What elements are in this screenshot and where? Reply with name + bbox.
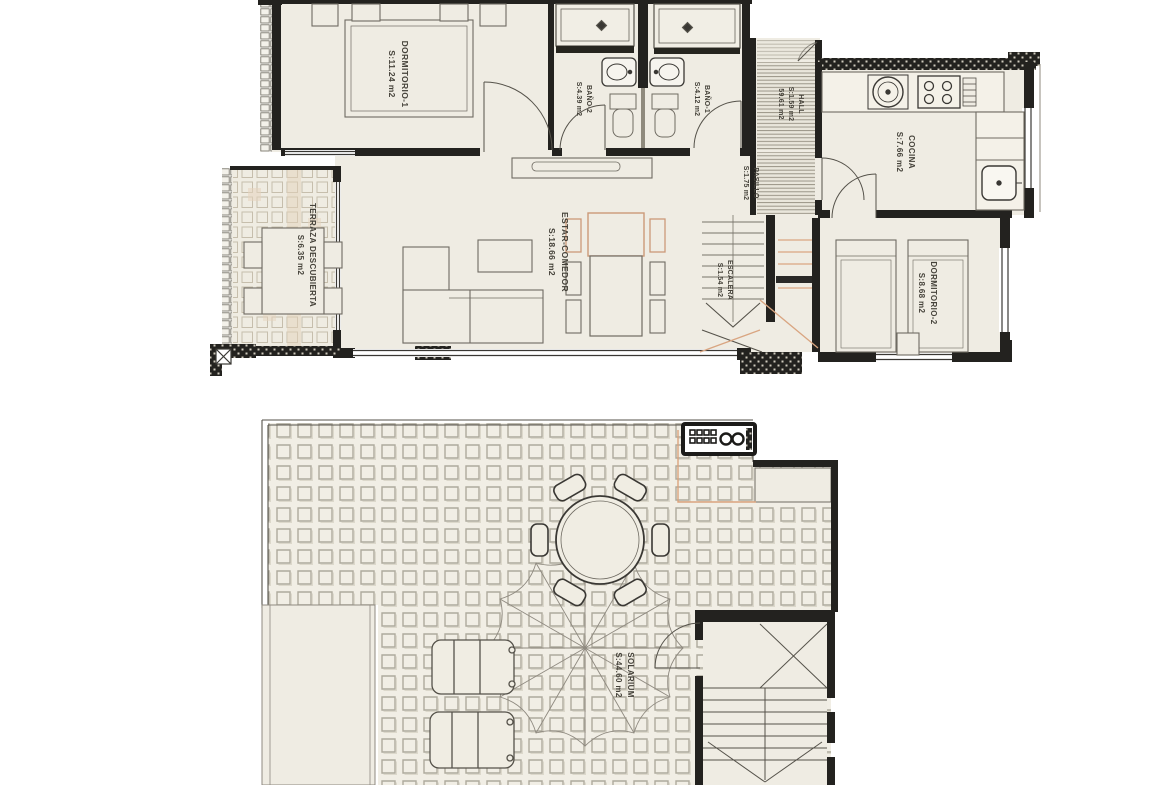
chair-icon: [244, 242, 262, 268]
double-bed-icon: [345, 4, 473, 117]
cutlery-tray-icon: [963, 78, 976, 106]
toilet-icon: [652, 94, 678, 137]
roof-floor-plan: [262, 420, 838, 785]
lower-roof-strip: [262, 605, 375, 785]
bbq-grill-icon: [683, 424, 755, 454]
kitchen-counter: [822, 72, 1004, 112]
sun-lounger-icon: [432, 640, 515, 694]
sun-lounger-icon: [430, 712, 514, 768]
nightstand-icon: [897, 333, 919, 355]
shower-icon: [654, 4, 740, 48]
chair-icon: [244, 288, 262, 314]
dining-set-icon: [566, 213, 665, 336]
chair-icon: [324, 288, 342, 314]
toilet-icon: [610, 94, 636, 137]
terrace-table-icon: [262, 228, 324, 314]
nightstand-icon: [312, 4, 338, 26]
kitchen-sink2-icon: [982, 166, 1022, 200]
nightstand-icon: [480, 4, 506, 26]
washbasin-icon: [650, 58, 684, 86]
shower-icon: [556, 4, 634, 46]
floor-plan-drawing: [0, 0, 1170, 785]
window: [999, 248, 1011, 332]
hall-steps-hatch: [757, 62, 815, 150]
washbasin-icon: [602, 58, 636, 86]
window: [353, 349, 737, 357]
single-bed-icon: [836, 240, 896, 352]
entrance-landing-hatch: [757, 40, 815, 60]
main-floor-plan: [210, 0, 1040, 376]
chair-icon: [324, 242, 342, 268]
coffee-table-icon: [478, 240, 532, 272]
pasillo-steps-hatch: [757, 152, 815, 214]
floor-plan-page: DORMITORIO-1 S:11.24 m2 BAÑO-2 S:4.39 m2…: [0, 0, 1170, 785]
tv-cabinet-icon: [512, 158, 652, 178]
window: [285, 150, 355, 156]
